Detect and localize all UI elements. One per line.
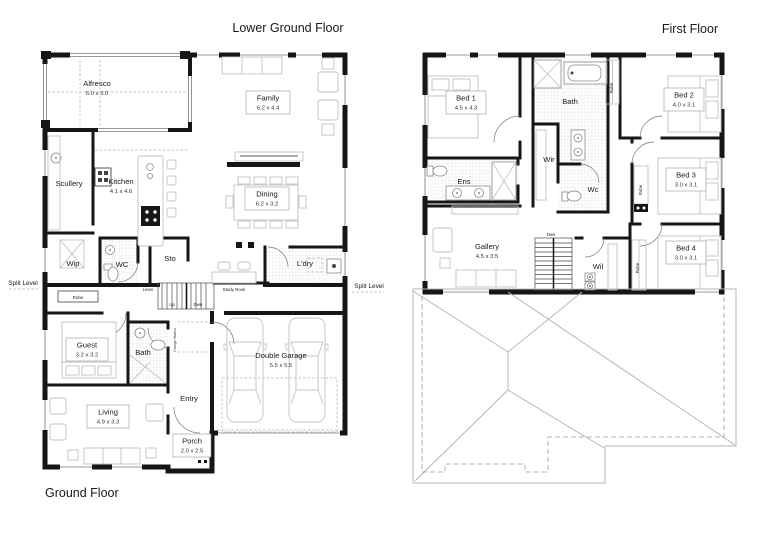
charge-station-label: Charge Station bbox=[173, 328, 177, 351]
room-dims-gallery: 4.5 x 3.5 bbox=[476, 254, 499, 260]
ground-floor-plan: Alfresco 6.0 x 3.0 Family 6.2 x 4.4 Scul… bbox=[8, 50, 384, 471]
room-label-ldry: L'dry bbox=[297, 259, 313, 268]
title-first-floor: First Floor bbox=[662, 22, 718, 36]
floor-plan-drawing: Alfresco 6.0 x 3.0 Family 6.2 x 4.4 Scul… bbox=[0, 0, 768, 539]
robe-label-bed4: Robe bbox=[635, 262, 640, 273]
room-label-bed3: Bed 3 bbox=[676, 171, 696, 180]
room-dims-dining: 6.2 x 3.2 bbox=[256, 202, 279, 208]
room-dims-living: 4.9 x 3.3 bbox=[97, 420, 120, 426]
linen-label: Linen bbox=[143, 287, 154, 292]
room-dims-porch: 2.0 x 2.5 bbox=[181, 449, 204, 455]
room-label-bed1: Bed 1 bbox=[456, 94, 476, 103]
stairs-dwn-label-ff: Dwn bbox=[547, 232, 556, 237]
room-label-kitchen: Kitchen bbox=[108, 177, 133, 186]
room-dims-bed3: 3.0 x 3.1 bbox=[675, 183, 698, 189]
room-label-wc-ff: Wc bbox=[588, 185, 599, 194]
robe-label-bed3: Robe bbox=[638, 184, 643, 195]
room-label-sto: Sto bbox=[164, 254, 175, 263]
robe-label: Robe bbox=[73, 295, 84, 300]
study-nook-label: Study Nook bbox=[223, 287, 247, 292]
room-label-family: Family bbox=[257, 94, 280, 103]
room-label-alfresco: Alfresco bbox=[83, 79, 110, 88]
room-label-scullery: Scullery bbox=[55, 179, 82, 188]
room-dims-bed4: 3.0 x 3.1 bbox=[675, 256, 698, 262]
room-label-entry: Entry bbox=[180, 394, 198, 403]
stairs-up-label: Up bbox=[169, 302, 175, 307]
floor-plan-sheet: Alfresco 6.0 x 3.0 Family 6.2 x 4.4 Scul… bbox=[0, 0, 768, 539]
room-label-gallery: Gallery bbox=[475, 242, 499, 251]
title-lower-ground-floor: Lower Ground Floor bbox=[232, 21, 343, 35]
room-dims-alfresco: 6.0 x 3.0 bbox=[86, 91, 109, 97]
room-label-bath-ff: Bath bbox=[562, 97, 578, 106]
gf-stairs bbox=[158, 283, 214, 309]
room-dims-bed1: 4.5 x 4.3 bbox=[455, 106, 478, 112]
room-dims-kitchen: 4.1 x 4.6 bbox=[110, 189, 133, 195]
split-level-label-right: Split Level bbox=[354, 283, 384, 290]
stairs-dwn-label: Dwn bbox=[194, 302, 203, 307]
room-label-living: Living bbox=[98, 408, 118, 417]
room-dims-bed2: 4.0 x 3.1 bbox=[673, 103, 696, 109]
alfresco-screen-walls bbox=[40, 50, 190, 128]
room-label-bath-gf: Bath bbox=[135, 348, 151, 357]
room-dims-garage: 5.5 x 5.5 bbox=[270, 363, 293, 369]
robe-label-bed2: Robe bbox=[609, 82, 614, 93]
room-label-dining: Dining bbox=[256, 190, 278, 199]
room-label-wir: Wir bbox=[543, 155, 555, 164]
car-icon bbox=[286, 318, 328, 422]
room-label-porch: Porch bbox=[182, 437, 202, 446]
room-label-bed2: Bed 2 bbox=[674, 91, 694, 100]
room-dims-family: 6.2 x 4.4 bbox=[257, 106, 280, 112]
title-ground-floor: Ground Floor bbox=[45, 486, 119, 500]
garage-cars bbox=[222, 318, 337, 432]
car-icon bbox=[224, 318, 266, 422]
roof-outline bbox=[413, 289, 736, 483]
room-label-wip: Wip bbox=[66, 259, 79, 268]
room-label-wc: WC bbox=[116, 260, 129, 269]
room-label-bed4: Bed 4 bbox=[676, 244, 696, 253]
room-label-ens: Ens bbox=[457, 177, 470, 186]
room-label-guest: Guest bbox=[77, 341, 98, 350]
ff-stairs bbox=[535, 238, 572, 290]
room-label-wil: Wil bbox=[593, 262, 604, 271]
first-floor-plan: Bed 1 4.5 x 4.3 Bath Bed 2 4.0 x 3.1 Wir… bbox=[422, 52, 726, 296]
room-label-garage: Double Garage bbox=[255, 351, 307, 360]
split-level-label-left: Split Level bbox=[8, 280, 38, 287]
room-dims-guest: 3.2 x 3.2 bbox=[76, 353, 99, 359]
